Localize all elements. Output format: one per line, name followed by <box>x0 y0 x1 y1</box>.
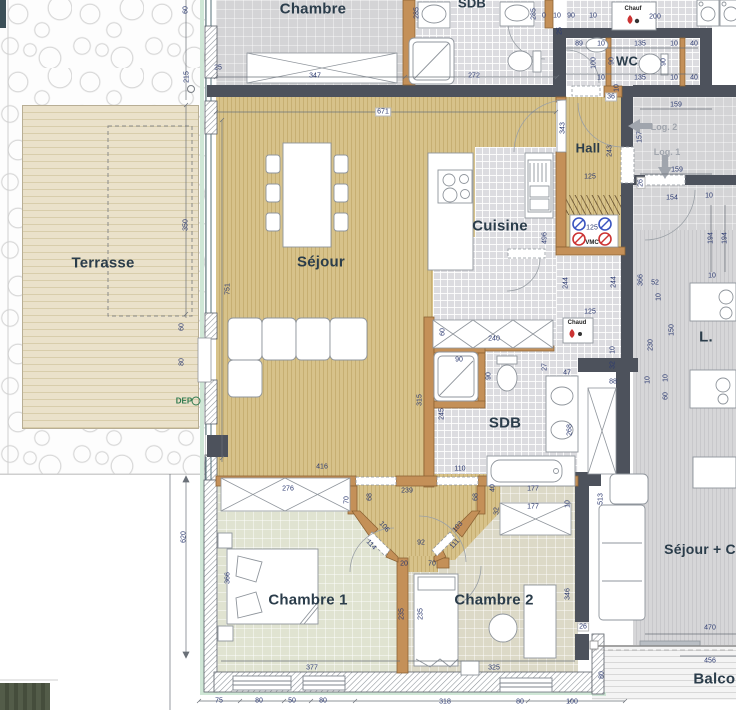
dimension-label: 20 <box>400 561 408 568</box>
room-label-s-jour-c-10: Séjour + C <box>664 541 736 557</box>
dimension-label: 10 <box>656 293 663 301</box>
dimension-label: 60 <box>663 392 670 400</box>
room-label-chambre-1-8: Chambre 1 <box>268 592 347 609</box>
annotation-vmc: VMC <box>585 240 598 246</box>
dimension-label: 285 <box>414 7 421 19</box>
dimension-label: 26 <box>577 623 589 632</box>
dimension-label: 114 <box>365 539 378 552</box>
dimension-label: 150 <box>669 324 676 336</box>
dimension-label: 100 <box>591 57 598 69</box>
dimension-label: 40 <box>690 41 698 48</box>
dimension-label: 40 <box>690 75 698 82</box>
dimension-label: 245 <box>439 408 446 420</box>
dimension-label: 177 <box>527 504 539 511</box>
dimension-label: 36 <box>605 93 617 102</box>
dimension-label: 346 <box>565 588 572 600</box>
dimension-label: 70 <box>428 561 436 568</box>
room-label-terrasse-4: Terrasse <box>71 255 134 272</box>
dimension-label: 10 <box>670 41 678 48</box>
dimension-label: 80 <box>179 358 186 366</box>
dimension-label: 10 <box>589 13 597 20</box>
dimension-label: 135 <box>634 41 646 48</box>
dimension-label: 70 <box>344 496 351 504</box>
dimension-label: 377 <box>306 665 318 672</box>
dimension-label: 200 <box>649 14 661 21</box>
dimension-label: 157 <box>637 131 644 143</box>
dimension-label: 80 <box>516 699 524 706</box>
dimension-label: 52 <box>651 280 659 287</box>
dimension-label: 366 <box>638 274 645 286</box>
dimension-label: 347 <box>309 73 321 80</box>
dimension-label: 32 <box>610 361 617 369</box>
dimension-label: 154 <box>666 195 678 202</box>
dimension-label: 194 <box>722 232 729 244</box>
dimension-label: 235 <box>418 608 425 620</box>
dimension-label: 25 <box>214 65 222 72</box>
dimension-label: 268 <box>567 424 574 436</box>
dimension-label: 159 <box>670 102 682 109</box>
dimension-label: 416 <box>316 464 328 471</box>
annotation-log-1: Log. 1 <box>654 147 681 157</box>
room-label-sdb-1: SDB <box>458 0 486 11</box>
dimension-label: 194 <box>708 232 715 244</box>
dimension-label: 10 <box>663 374 670 382</box>
dimension-label: 50 <box>288 698 296 705</box>
dimension-label: 10 <box>565 500 572 508</box>
room-label-l-12: L. <box>699 329 713 346</box>
dimension-label: 10 <box>708 273 716 280</box>
dimension-label: 103 <box>451 520 464 533</box>
annotation-chaud: Chaud <box>568 320 587 326</box>
annotation-chauf: Chauf <box>625 6 642 12</box>
dimension-label: 110 <box>454 466 465 473</box>
room-label-balcon-11: Balcon <box>693 671 736 688</box>
dimension-label: 10 <box>553 13 561 20</box>
room-label-sdb-7: SDB <box>489 415 521 432</box>
dimension-label: 90 <box>567 13 575 20</box>
dimension-label: 90 <box>609 57 616 65</box>
dimension-label: 620 <box>181 531 188 543</box>
dimension-label: 513 <box>598 493 605 505</box>
annotation-log-2: Log. 2 <box>651 122 678 132</box>
dimension-label: 111 <box>449 538 461 551</box>
dimension-label: 125 <box>586 225 598 232</box>
dimension-label: 27 <box>542 363 549 371</box>
dimension-label: 0 <box>542 13 546 20</box>
dimension-label: 40 <box>490 484 497 492</box>
dimension-label: 10 <box>670 75 678 82</box>
dimension-label: 90 <box>455 357 463 364</box>
dimension-label: 92 <box>417 540 425 547</box>
dimension-label: 135 <box>634 75 646 82</box>
dimension-label: 318 <box>439 699 451 706</box>
room-label-wc-2: WC <box>616 54 638 69</box>
dimension-label: 177 <box>527 486 539 493</box>
dimension-label: 235 <box>399 608 406 620</box>
dimension-label: 159 <box>671 167 683 174</box>
dimension-label: 215 <box>184 71 191 83</box>
annotation-dep: DEP <box>176 397 192 406</box>
dimension-label: 243 <box>607 145 614 157</box>
floor-plan: ChambreSDBWCHallTerrasseSéjourCuisineSDB… <box>0 0 736 710</box>
dimension-label: 68 <box>367 493 374 501</box>
dimension-label: 470 <box>704 625 716 632</box>
dimension-label: 343 <box>560 122 567 134</box>
dimension-label: 89 <box>575 41 583 48</box>
dimension-label: 456 <box>704 658 716 665</box>
dimension-label: 88 <box>609 379 617 386</box>
dimension-label: 244 <box>611 276 618 288</box>
dimension-label: 10 <box>705 193 713 200</box>
dimension-label: 244 <box>563 277 570 289</box>
room-label-chambre-2-9: Chambre 2 <box>454 592 533 609</box>
dimension-label: 60 <box>179 323 186 331</box>
dimension-label: 75 <box>215 698 223 705</box>
dimension-label: 125 <box>584 174 596 181</box>
room-label-hall-3: Hall <box>576 141 601 156</box>
dimension-label: 276 <box>282 486 294 493</box>
labels-layer: ChambreSDBWCHallTerrasseSéjourCuisineSDB… <box>0 0 736 710</box>
dimension-label: 10 <box>597 75 605 82</box>
dimension-label: 239 <box>401 488 413 495</box>
dimension-label: 90 <box>661 58 668 66</box>
dimension-label: 80 <box>599 671 606 679</box>
dimension-label: 106 <box>377 520 390 533</box>
dimension-label: 100 <box>566 699 578 706</box>
dimension-label: 10 <box>597 41 605 48</box>
dimension-label: 366 <box>225 572 232 584</box>
dimension-label: 10 <box>610 346 617 354</box>
dimension-label: 80 <box>255 698 263 705</box>
room-label-chambre-0: Chambre <box>280 1 346 18</box>
dimension-label: 496 <box>542 232 549 244</box>
dimension-label: 125 <box>584 309 596 316</box>
dimension-label: 10 <box>614 84 621 92</box>
room-label-cuisine-6: Cuisine <box>472 218 528 235</box>
dimension-label: 90 <box>486 372 493 380</box>
dimension-label: 26 <box>637 177 646 189</box>
dimension-label: 32 <box>494 507 501 515</box>
dimension-label: 240 <box>488 336 500 343</box>
dimension-label: 80 <box>319 698 327 705</box>
dimension-label: 25 <box>557 27 564 35</box>
dimension-label: 272 <box>468 73 480 80</box>
dimension-label: 60 <box>440 328 447 336</box>
dimension-label: 47 <box>563 370 571 377</box>
dimension-label: 230 <box>648 339 655 351</box>
dimension-label: 10 <box>645 376 652 384</box>
dimension-label: 315 <box>417 394 424 406</box>
dimension-label: 60 <box>183 6 190 14</box>
dimension-label: 751 <box>225 283 232 295</box>
dimension-label: 68 <box>473 493 480 501</box>
room-label-s-jour-5: Séjour <box>297 254 345 271</box>
dimension-label: 325 <box>488 665 500 672</box>
dimension-label: 285 <box>531 8 538 20</box>
dimension-label: 671 <box>375 108 391 117</box>
dimension-label: 350 <box>183 219 190 231</box>
